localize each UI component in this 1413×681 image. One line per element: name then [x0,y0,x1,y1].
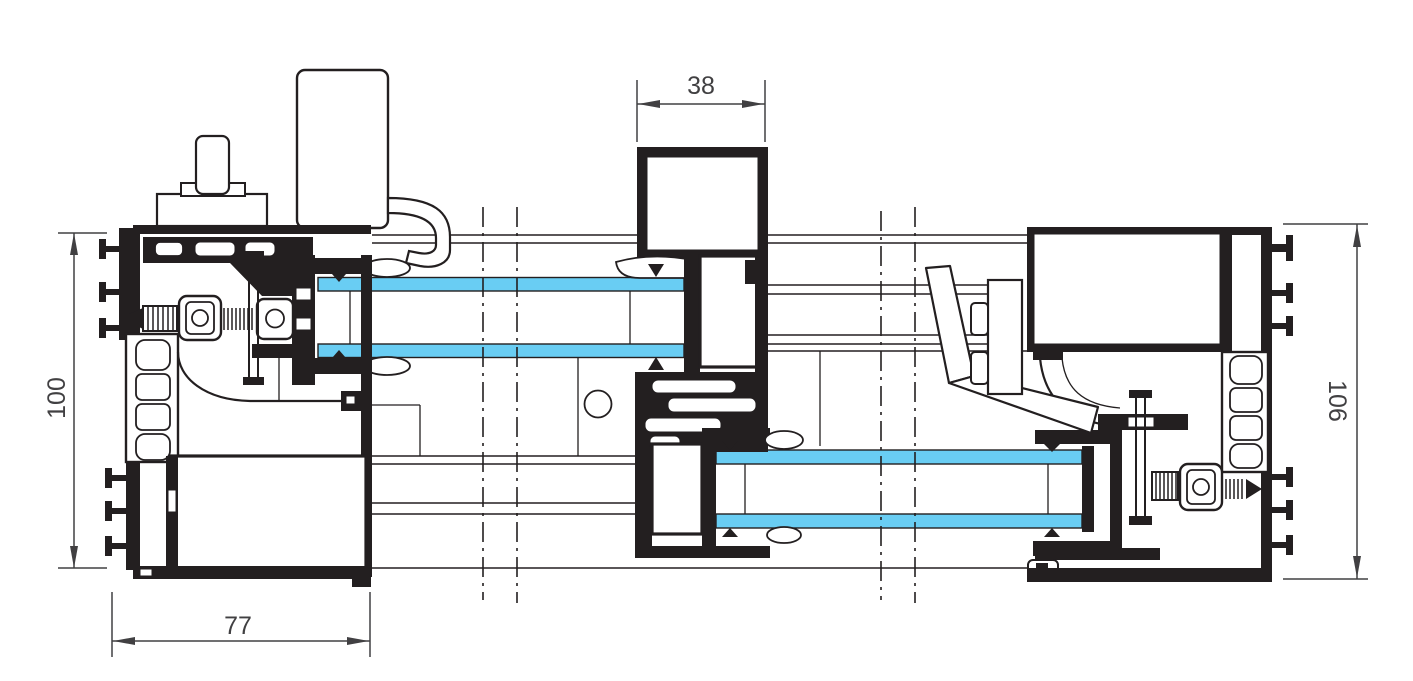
brush-arm [388,198,450,267]
glass-pane [716,450,1082,464]
dim-label-38: 38 [687,72,715,100]
glazing-unit-upper [318,278,684,358]
glazing-gasket [765,431,803,449]
threaded-rod [224,308,252,330]
drain-hole [585,391,612,418]
dim-label-100: 100 [43,377,71,419]
glazing-unit-lower [716,450,1082,528]
interlock-chamber-lower [652,444,702,534]
technical-drawing-canvas: 100 77 38 106 [0,0,1413,681]
left-jamb-section [99,70,450,587]
cross-section-drawing: 100 77 38 106 [0,0,1413,681]
polyamide-chamber-column [126,334,178,462]
dimension-bottom-77: 77 [112,592,370,657]
dimension-left-100: 100 [43,233,107,568]
gasket-cluster [143,237,313,296]
dimension-right-106: 106 [1283,224,1368,579]
guide-plate [157,194,267,226]
thermal-hooks-right [1270,235,1293,555]
glass-pane [716,514,1082,528]
right-jamb-section [926,227,1293,582]
glass-pane [318,278,684,292]
glass-pane [318,344,684,358]
fixing-screw [1226,479,1242,499]
dimension-top-38: 38 [637,72,765,142]
polyamide-chamber-column-right [1222,352,1268,472]
brush-holder [297,70,388,228]
glazing-gasket [767,527,801,543]
dim-label-106: 106 [1323,380,1351,422]
roller-pin [196,136,229,194]
frame-lower-chamber [170,456,366,572]
glazing-pocket-left [292,255,410,385]
glazing-pocket-right [1033,430,1120,556]
dim-label-77: 77 [224,612,252,640]
